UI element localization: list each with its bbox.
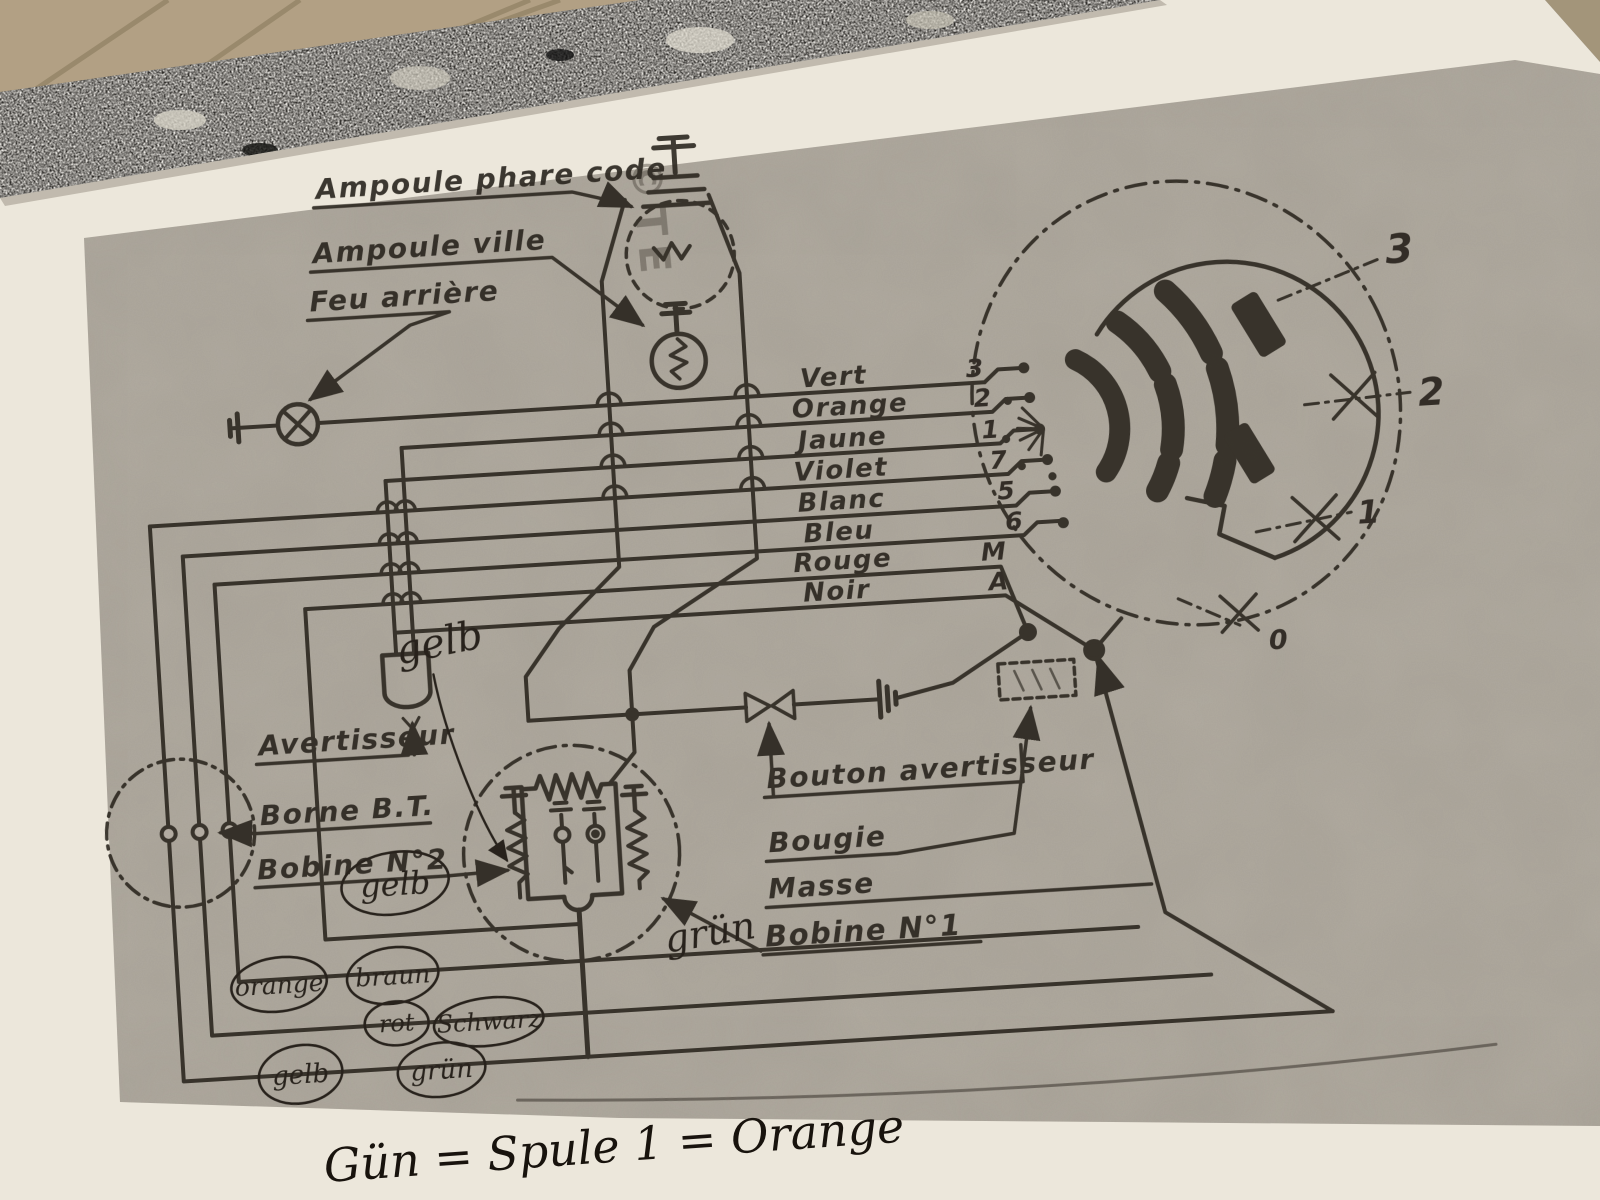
circled-rot-text: rot bbox=[378, 1008, 416, 1038]
switch-pos-2: 2 bbox=[1417, 369, 1446, 415]
terminal-6: 6 bbox=[1004, 506, 1023, 536]
wire-label-vert: Vert bbox=[799, 360, 868, 394]
circled-braun-text: braun bbox=[354, 959, 431, 993]
terminal-M: M bbox=[980, 536, 1007, 566]
switch-pos-1: 1 bbox=[1356, 492, 1381, 531]
terminal-2: 2 bbox=[973, 383, 992, 413]
wire-label-jaune: Jaune bbox=[792, 421, 888, 457]
diagram-photo-canvas: ©TE bbox=[0, 0, 1600, 1200]
wire-label-noir: Noir bbox=[802, 575, 872, 609]
gelb-circled-text: gelb bbox=[359, 863, 431, 905]
wire-label-violet: Violet bbox=[793, 452, 889, 488]
switch-pos-0: 0 bbox=[1268, 624, 1289, 656]
wire-label-rouge: Rouge bbox=[792, 543, 892, 579]
terminal-3: 3 bbox=[965, 353, 984, 383]
switch-pos-3: 3 bbox=[1384, 226, 1415, 274]
masse-text: Masse bbox=[767, 866, 875, 905]
wire-label-blanc: Blanc bbox=[797, 484, 886, 519]
terminal-A: A bbox=[986, 566, 1009, 596]
photo-of-wiring-diagram: ©TE bbox=[0, 0, 1600, 1200]
circled-orange-text: orange bbox=[234, 968, 324, 1002]
terminal-7: 7 bbox=[989, 445, 1009, 475]
terminal-1: 1 bbox=[981, 414, 1000, 444]
circled-gruen-text: grün bbox=[409, 1054, 473, 1088]
terminal-5: 5 bbox=[996, 476, 1015, 506]
circled-gelb-text: gelb bbox=[271, 1059, 330, 1092]
